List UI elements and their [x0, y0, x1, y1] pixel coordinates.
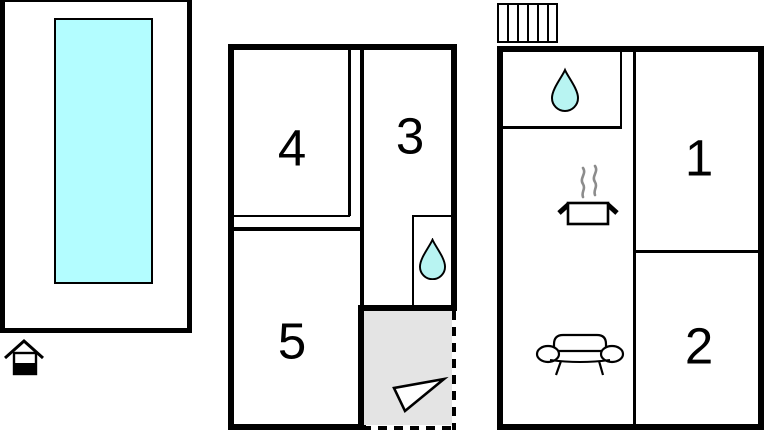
- wall: [228, 44, 234, 430]
- water-drop-icon: [551, 67, 579, 113]
- sofa-leg-left: [556, 361, 561, 375]
- room-5-label: 5: [278, 316, 306, 367]
- house-body-filled-half: [14, 364, 36, 375]
- wall: [360, 50, 364, 308]
- dashed-wall: [452, 311, 456, 430]
- house-marker-icon: [4, 338, 46, 378]
- wall: [503, 126, 622, 129]
- wall: [497, 46, 764, 52]
- sofa-armrest-left: [537, 346, 559, 362]
- stairs-icon: [497, 3, 558, 43]
- steam-line: [582, 168, 584, 197]
- pot-body: [568, 203, 608, 224]
- cooking-pot-icon: [556, 163, 620, 227]
- room-1-label: 1: [685, 133, 713, 184]
- wall: [412, 215, 451, 217]
- room-2-label: 2: [685, 321, 713, 372]
- sofa-icon: [534, 328, 626, 378]
- dashed-wall: [362, 426, 457, 430]
- wall: [228, 44, 457, 50]
- wall: [451, 44, 457, 311]
- floor-plan-figure: 4 3 5 1 2: [0, 0, 768, 432]
- wall: [633, 52, 636, 424]
- sofa-leg-right: [599, 361, 603, 375]
- wall: [497, 46, 503, 430]
- sofa-base: [550, 360, 610, 362]
- wall: [228, 424, 366, 430]
- steam-line: [594, 166, 596, 195]
- wall: [497, 424, 764, 430]
- wall: [234, 227, 361, 231]
- sofa-backrest: [554, 335, 606, 356]
- wall: [412, 217, 414, 305]
- swimming-pool: [54, 18, 153, 284]
- room-3-label: 3: [396, 111, 424, 162]
- wall: [234, 215, 350, 217]
- wall: [758, 46, 764, 430]
- wall: [348, 50, 351, 216]
- wall: [620, 52, 622, 126]
- water-drop-shape: [420, 240, 445, 280]
- water-drop-icon: [419, 238, 446, 280]
- arrow-shape: [394, 379, 444, 411]
- direction-arrow-icon: [388, 372, 450, 417]
- sofa-armrest-right: [601, 346, 623, 362]
- pool-enclosure: [0, 0, 192, 333]
- water-drop-shape: [552, 70, 578, 111]
- room-4-label: 4: [278, 123, 306, 174]
- wall: [636, 250, 758, 253]
